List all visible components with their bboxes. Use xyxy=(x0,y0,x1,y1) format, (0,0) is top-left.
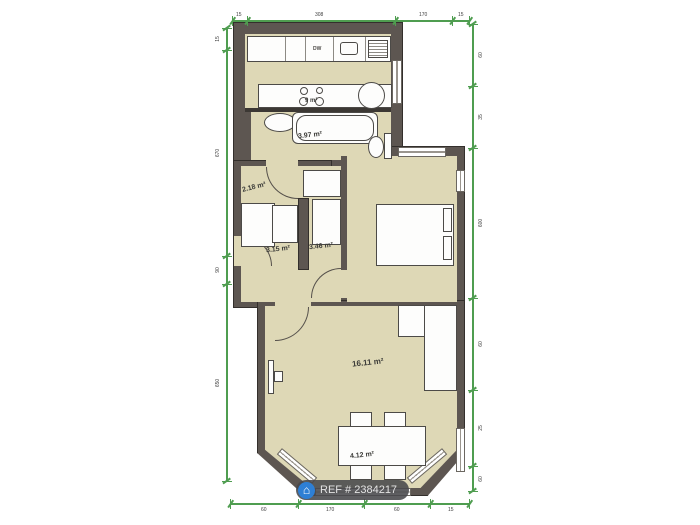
counter-divider xyxy=(285,37,286,61)
dimension-label: 170 xyxy=(419,12,427,18)
dimension-rail-top xyxy=(232,20,470,22)
dimension-label: 60 xyxy=(261,507,267,513)
dimension-label: 308 xyxy=(315,12,323,18)
counter-divider xyxy=(365,37,366,61)
dimension-label: 170 xyxy=(326,507,334,513)
bedroom-top-window xyxy=(398,147,446,157)
dimension-label: 35 xyxy=(478,114,484,120)
living-right-window xyxy=(456,428,465,472)
hall-cabinet xyxy=(272,205,298,243)
tv-screen xyxy=(274,371,283,382)
hall-closet-duct-wall xyxy=(298,198,309,270)
closet-bedroom-wall xyxy=(341,156,347,270)
dimension-label: 90 xyxy=(215,267,221,273)
dimension-label: 650 xyxy=(215,379,221,387)
dimension-label: 670 xyxy=(215,149,221,157)
toilet-tank xyxy=(384,133,392,159)
sofa-body xyxy=(424,305,457,391)
dimension-label: 25 xyxy=(478,425,484,431)
kitchen-round-basin xyxy=(358,82,385,109)
bed-pillow xyxy=(443,208,452,232)
watermark-badge[interactable]: ⌂ REF # 2384217 xyxy=(296,480,409,500)
kitchen-sink-bowl xyxy=(340,42,358,55)
toilet-bowl xyxy=(368,136,384,158)
bathroom-door-opening xyxy=(266,160,298,167)
dimension-label: 60 xyxy=(478,341,484,347)
hall-cabinet xyxy=(241,203,275,247)
closet-wardrobe xyxy=(303,170,341,197)
kitchen-window xyxy=(392,60,402,104)
dining-chair xyxy=(384,464,406,480)
kitchen-area-label: 9 m² xyxy=(305,98,317,104)
dimension-label: 15 xyxy=(458,12,464,18)
stove-burner xyxy=(316,87,323,94)
dimension-label: 60 xyxy=(394,507,400,513)
watermark-ref-text: REF # 2384217 xyxy=(320,484,397,496)
dimension-label: 15 xyxy=(236,12,242,18)
dishwasher-label: DW xyxy=(313,46,321,52)
dimension-label: 60 xyxy=(478,476,484,482)
dining-chair xyxy=(350,464,372,480)
counter-divider xyxy=(333,37,334,61)
home-icon: ⌂ xyxy=(298,482,315,499)
dimension-label: 600 xyxy=(478,219,484,227)
stove-burner xyxy=(300,87,308,95)
dimension-label: 60 xyxy=(478,52,484,58)
dimension-rail-bottom xyxy=(230,503,470,505)
dimension-rail-right xyxy=(472,24,474,492)
counter-divider xyxy=(305,37,306,61)
bed-pillow xyxy=(443,236,452,260)
dimension-label: 15 xyxy=(215,36,221,42)
closet-wardrobe xyxy=(312,199,341,245)
sink-drainboard xyxy=(368,40,388,58)
floor-plan-canvas: DW 9 m² 3.97 m² 2.18 m² 3.15 m² 3.46 m² … xyxy=(0,0,700,525)
living-door-opening xyxy=(275,300,311,307)
bedroom-right-window xyxy=(456,170,465,192)
dimension-label: 15 xyxy=(448,507,454,513)
